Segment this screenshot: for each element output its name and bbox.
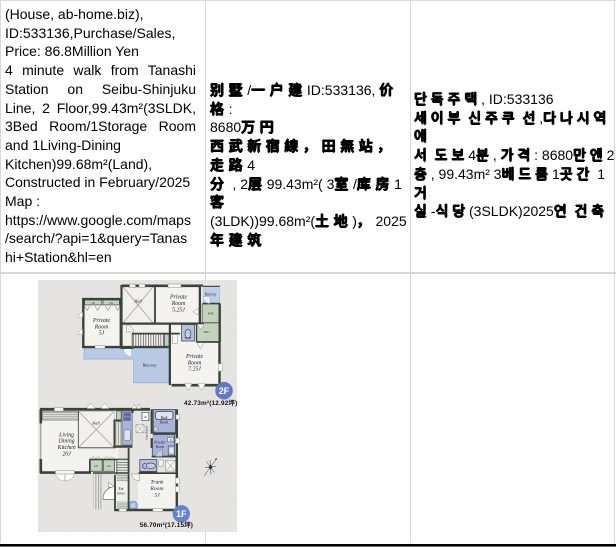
svg-text:20J: 20J	[62, 451, 71, 457]
svg-text:clo: clo	[94, 464, 98, 468]
svg-text:WIC: WIC	[208, 312, 215, 316]
svg-text:Cup Board: Cup Board	[145, 426, 149, 440]
svg-text:5J: 5J	[99, 331, 105, 337]
svg-text:Bath: Bath	[161, 416, 168, 420]
svg-text:Room: Room	[159, 421, 169, 425]
svg-text:WIC: WIC	[203, 330, 210, 334]
svg-text:Balcony: Balcony	[143, 362, 157, 367]
svg-text:Hall: Hall	[133, 299, 142, 304]
svg-text:rance: rance	[117, 492, 126, 496]
svg-text:Hall: Hall	[91, 421, 100, 426]
svg-text:Room: Room	[149, 486, 163, 492]
svg-text:Private: Private	[169, 295, 187, 301]
svg-text:clo: clo	[91, 301, 95, 305]
svg-text:Balcony: Balcony	[205, 292, 217, 296]
svg-text:5J: 5J	[154, 493, 160, 499]
svg-text:56.70m²(17.15坪): 56.70m²(17.15坪)	[140, 520, 193, 529]
svg-text:Dining: Dining	[58, 439, 75, 445]
svg-text:clo: clo	[107, 464, 111, 468]
svg-text:Room: Room	[187, 360, 202, 366]
svg-text:Room: Room	[171, 301, 186, 307]
svg-text:Kitchen: Kitchen	[57, 445, 76, 451]
svg-text:Living: Living	[58, 432, 74, 438]
svg-text:Private: Private	[92, 318, 110, 324]
svg-text:5.25J: 5.25J	[172, 308, 185, 314]
svg-text:Powder: Powder	[153, 441, 166, 445]
svg-text:2F: 2F	[219, 386, 230, 396]
svg-text:Ent: Ent	[118, 487, 125, 491]
svg-text:Room: Room	[94, 324, 109, 330]
svg-text:42.73m²(12.92坪): 42.73m²(12.92坪)	[184, 398, 237, 407]
svg-text:Room: Room	[155, 445, 165, 449]
svg-text:clo: clo	[109, 301, 113, 305]
svg-text:1F: 1F	[176, 509, 187, 519]
svg-text:Private: Private	[185, 354, 203, 360]
svg-text:Trunk: Trunk	[150, 480, 164, 486]
svg-text:7.25J: 7.25J	[188, 367, 201, 373]
